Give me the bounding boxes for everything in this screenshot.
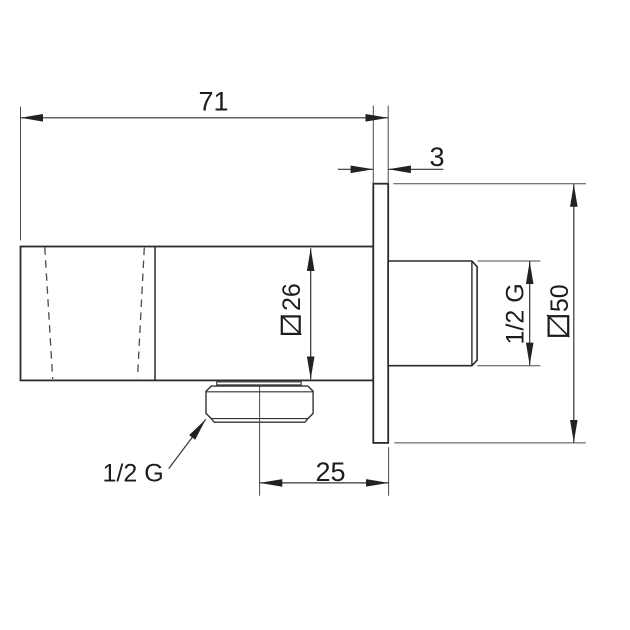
- svg-text:25: 25: [315, 457, 345, 487]
- svg-text:71: 71: [198, 87, 228, 117]
- svg-text:50: 50: [546, 284, 574, 312]
- svg-text:3: 3: [429, 142, 444, 172]
- svg-text:26: 26: [278, 283, 306, 311]
- svg-text:1/2 G: 1/2 G: [502, 283, 530, 344]
- svg-text:1/2 G: 1/2 G: [103, 460, 164, 488]
